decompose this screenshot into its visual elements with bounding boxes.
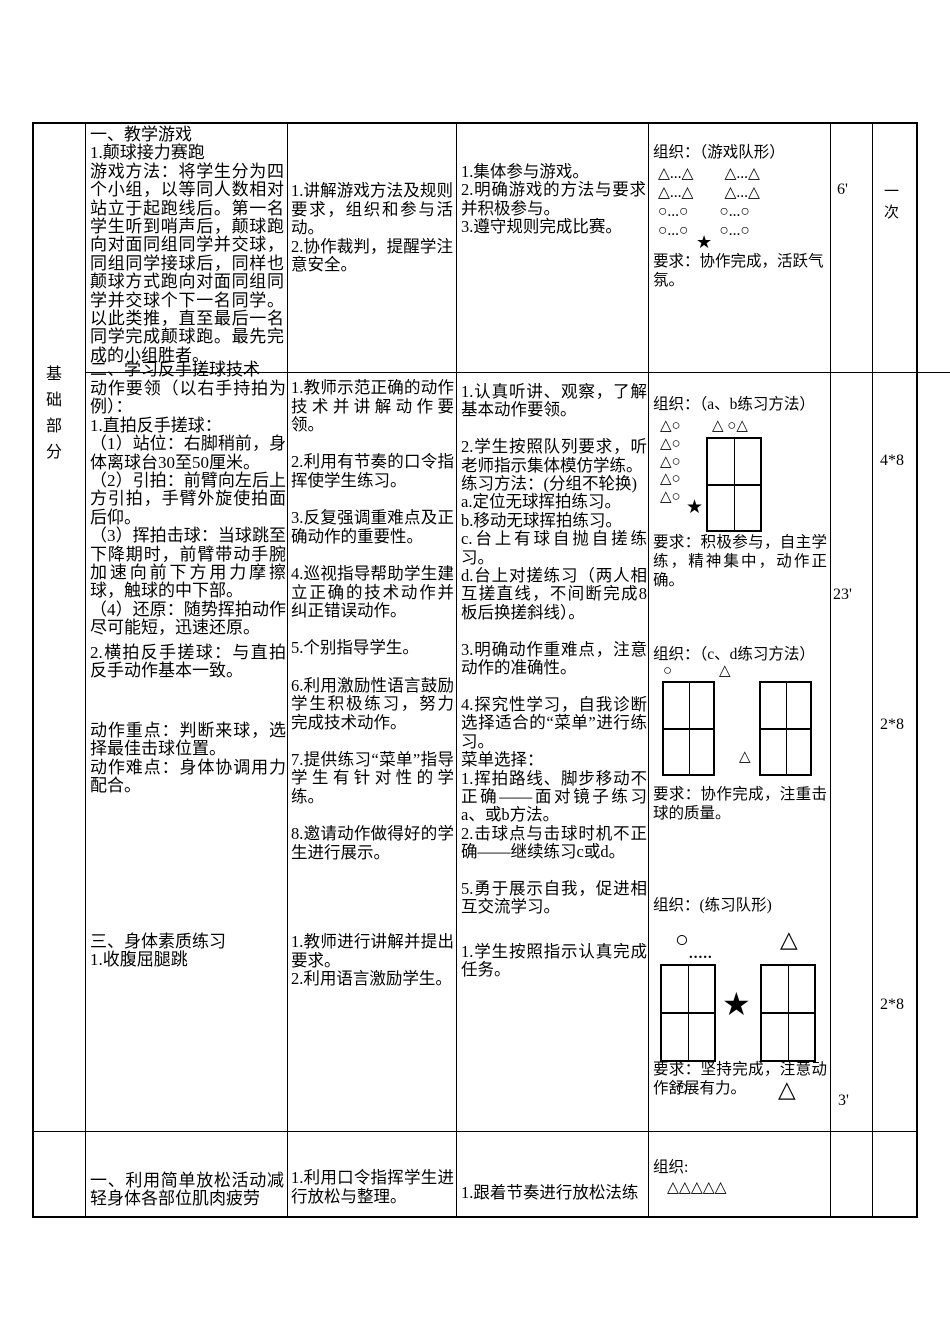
fitness-teacher-activity: 1.教师进行讲解并提出要求。 2.利用语言激励学生。 — [291, 933, 454, 989]
fitness-content: 三、身体素质练习 1.收腹屈腿跳 — [90, 933, 286, 970]
student-triangle-icon: △ — [719, 663, 731, 679]
column-divider — [85, 122, 86, 1218]
game-teacher-activity: 1.讲解游戏方法及规则要求，组织和参与活动。 2.协作裁判，提醒学注意安全。 — [291, 182, 453, 275]
student-triangle-icon: △ — [780, 928, 798, 952]
org-drill-requirement: 要求：坚持完成，注意动作舒展有力。 — [653, 1060, 827, 1098]
teacher-star-icon: ★ — [696, 234, 712, 250]
fitness-student-activity: 1.学生按照指示认真完成任务。 — [461, 943, 647, 980]
student-triangle-icon: △ — [739, 749, 751, 765]
relax-org-title: 组织: — [653, 1158, 827, 1177]
table-tennis-table-diagram — [706, 437, 762, 532]
skill-teacher-activity: 1.教师示范正确的动作技术并讲解动作要领。 2.利用有节奏的口令指挥使学生练习。… — [291, 379, 454, 862]
skill-shakehand-text: 2.横拍反手搓球：与直拍反手动作基本一致。 — [90, 644, 286, 681]
skill-count-ab: 4*8 — [880, 452, 904, 470]
relax-content: 一、利用简单放松活动减轻身体各部位肌肉疲劳 — [90, 1172, 284, 1209]
column-divider — [872, 122, 873, 1218]
org-ab-requirement: 要求：积极参与，自主学练，精神集中，动作正确。 — [653, 533, 827, 590]
game-subheading: 1.颠球接力赛跑 — [90, 144, 284, 162]
column-divider — [830, 122, 831, 1218]
column-divider — [456, 122, 457, 1218]
column-divider — [648, 122, 649, 1218]
teacher-star-icon: ★ — [722, 996, 751, 1012]
section-label: 基础部分 — [46, 362, 66, 466]
student-circle-icon: ○ — [663, 663, 672, 679]
teacher-star-icon: ★ — [686, 500, 703, 516]
skill-key-points-text: 动作要领（以右手持拍为例）： 1.直拍反手搓球： （1）站位：右脚稍前，身体离球… — [90, 380, 286, 638]
relax-student-activity: 1.跟着节奏进行放松法练 — [461, 1184, 647, 1202]
student-circle-icon: ○ — [675, 928, 689, 952]
table-tennis-table-diagram — [660, 964, 716, 1062]
game-count: 一次 — [884, 182, 901, 224]
game-requirement: 要求：协作完成，活跃气氛。 — [653, 252, 827, 290]
org-cd-title: 组织：（c、d练习方法） — [653, 645, 829, 664]
game-formation-diagram: △...△ △...△ △...△ △...△ ○...○ ○...○ ○...… — [658, 164, 828, 240]
relax-teacher-activity: 1.利用口令指挥学生进行放松与整理。 — [291, 1169, 454, 1206]
game-content-cell: 一、教学游戏 1.颠球接力赛跑 游戏方法：将学生分为四个小组，以等同人数相对站立… — [90, 126, 284, 365]
game-time: 6' — [837, 181, 848, 199]
org-ab-pair-row1: △○ — [660, 418, 681, 434]
table-tennis-table-diagram — [759, 681, 812, 776]
table-tennis-table-diagram — [760, 964, 816, 1062]
game-method-text: 游戏方法：将学生分为四个小组，以等同人数相对站立于起跑线后。第一名学生听到哨声后… — [90, 163, 284, 365]
game-student-activity: 1.集体参与游戏。 2.明确游戏的方法与要求并积极参与。 3.遵守规则完成比赛。 — [461, 163, 646, 237]
skill-focus-difficulty: 动作重点：判断来球，选择最佳击球位置。 动作难点：身体协调用力配合。 — [90, 722, 286, 796]
dots-ellipsis: ..... — [689, 946, 713, 962]
org-cd-requirement: 要求：协作完成，注重击球的质量。 — [653, 785, 827, 823]
skill-time: 23' — [833, 586, 852, 604]
org-drill-title: 组织：(练习队形) — [653, 896, 827, 915]
fitness-count: 2*8 — [880, 996, 904, 1014]
game-organization-title: 组织：（游戏队形） — [653, 143, 827, 162]
fitness-time: 3' — [838, 1092, 849, 1110]
org-ab-title: 组织：（a、b练习方法） — [653, 395, 827, 414]
skill-heading: 二、学习反手搓球技术 — [90, 361, 286, 379]
skill-student-activity: 1.认真听讲、观察，了解基本动作要领。 2.学生按照队列要求，听老师指示集体模仿… — [461, 383, 647, 917]
skill-count-cd: 2*8 — [880, 716, 904, 734]
row-divider — [32, 1131, 918, 1132]
game-heading: 一、教学游戏 — [90, 126, 284, 144]
column-divider — [287, 122, 288, 1218]
org-ab-pairs-column: △○ △○ △○ △○ — [660, 436, 700, 506]
lesson-plan-page: 基础部分 一、教学游戏 1.颠球接力赛跑 游戏方法：将学生分为四个小组，以等同人… — [0, 0, 950, 1344]
table-tennis-table-diagram — [662, 681, 715, 776]
relax-formation-diagram: △△△△△ — [667, 1178, 827, 1197]
org-ab-top-shapes: △ ○△ — [712, 418, 748, 434]
